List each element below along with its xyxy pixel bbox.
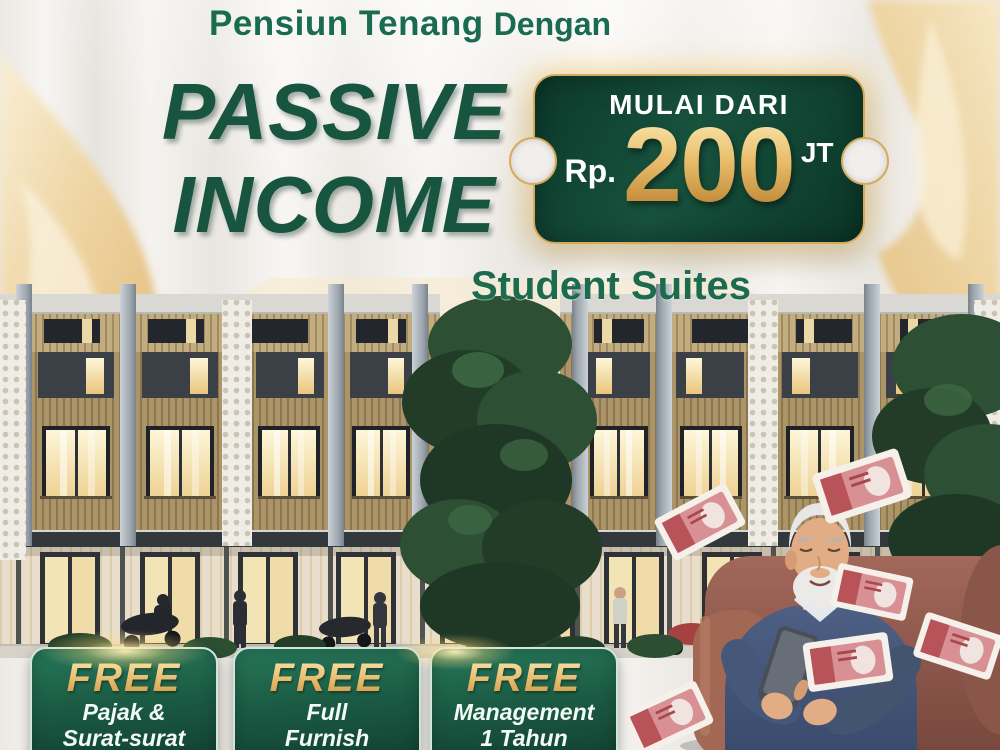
free-badge-title: FREE: [432, 657, 616, 699]
lattice-panel: [222, 300, 252, 546]
free-badge-line: Surat-surat: [32, 725, 216, 750]
price-currency: Rp.: [564, 153, 616, 190]
price-unit: JT: [801, 137, 834, 169]
price-ticket: MULAI DARI Rp. 200 JT: [533, 74, 865, 244]
free-badge-line: Pajak &: [32, 699, 216, 725]
price-amount: 200: [623, 121, 794, 210]
poster-title: Pensiun TenangDengan: [0, 4, 820, 44]
project-name: Student Suites: [425, 264, 797, 309]
free-badge-line: Full: [235, 699, 419, 725]
free-badge-management: FREE Management 1 Tahun: [430, 647, 618, 750]
free-badge-furnish: FREE Full Furnish: [233, 647, 421, 750]
headline-line1: PASSIVE: [138, 66, 530, 159]
free-badge-title: FREE: [32, 657, 216, 699]
building-wing: [0, 284, 440, 560]
retiree-with-phone: [725, 503, 917, 750]
poster-title-rest: Dengan: [494, 6, 611, 42]
free-badge-line: 1 Tahun: [432, 725, 616, 750]
lattice-panel: [0, 300, 26, 560]
price-row: Rp. 200 JT: [564, 121, 833, 210]
door-unit: [40, 552, 100, 648]
retiree-scene: [600, 430, 1000, 750]
free-badge-line: Furnish: [235, 725, 419, 750]
free-badge-line: Management: [432, 699, 616, 725]
promo-poster: Pensiun TenangDengan PASSIVE INCOME MULA…: [0, 0, 1000, 750]
headline-line2: INCOME: [138, 159, 530, 252]
free-badge-pajak: FREE Pajak & Surat-surat: [30, 647, 218, 750]
free-badge-title: FREE: [235, 657, 419, 699]
passive-income-headline: PASSIVE INCOME: [138, 66, 530, 252]
poster-title-strong: Pensiun Tenang: [209, 4, 484, 43]
